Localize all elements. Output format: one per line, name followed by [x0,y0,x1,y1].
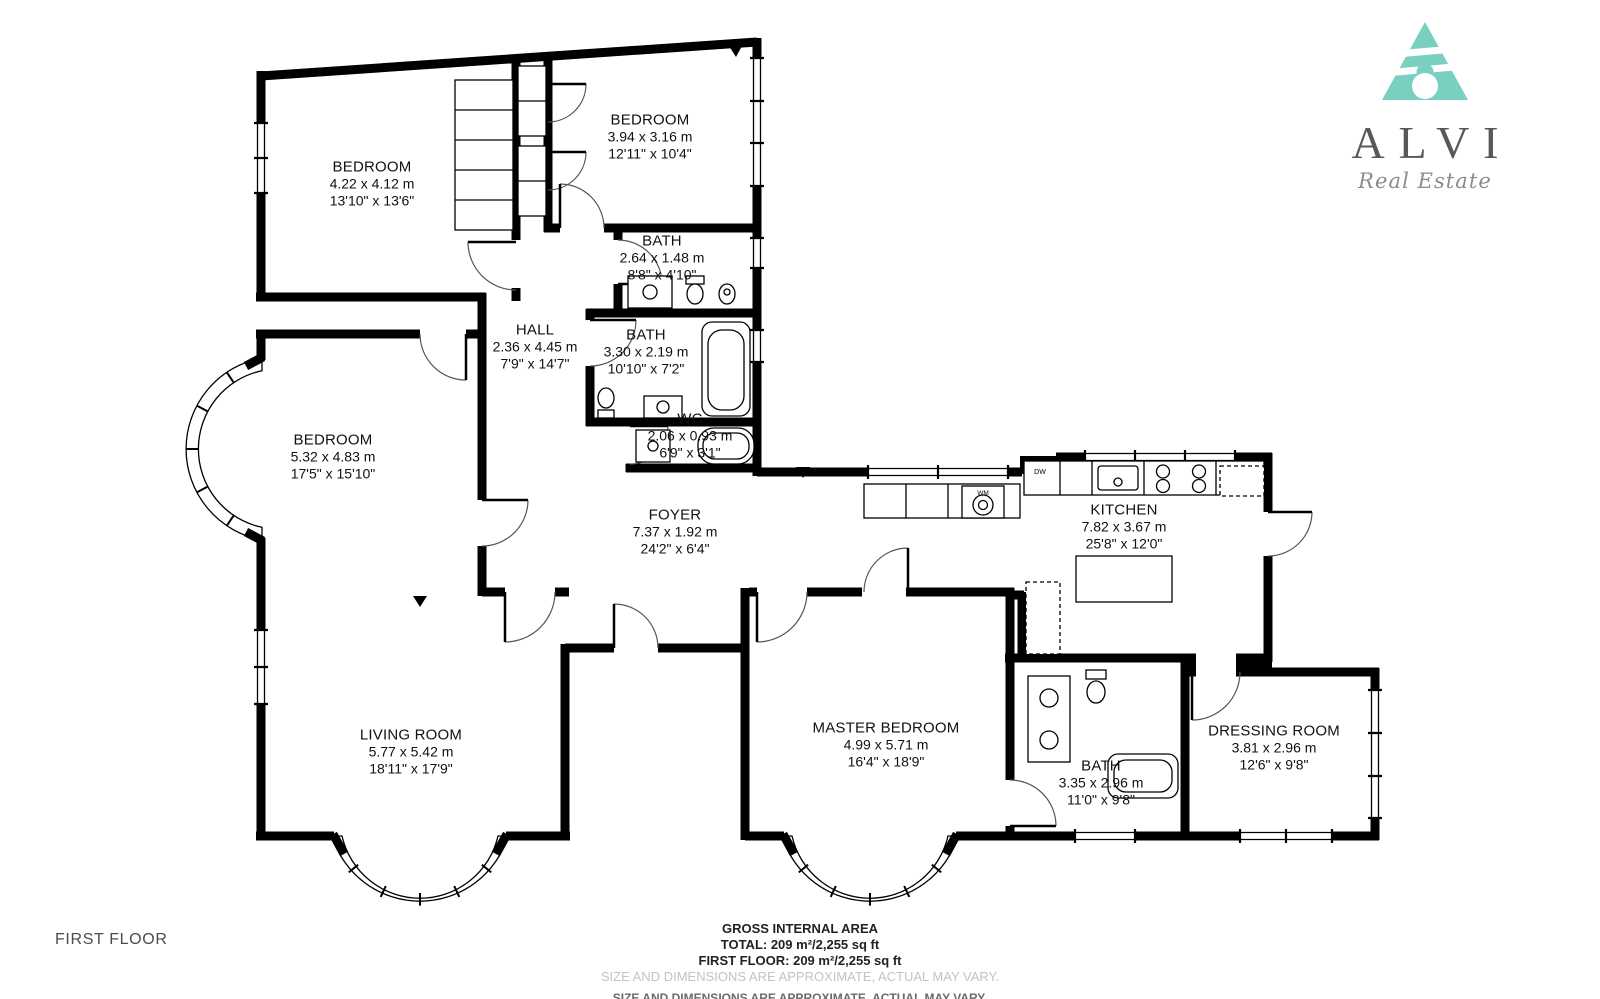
first-floor-area: FIRST FLOOR: 209 m²/2,255 sq ft [0,953,1600,969]
size-disclaimer: SIZE AND DIMENSIONS ARE APPROXIMATE, ACT… [0,969,1600,985]
master-bath-fixtures [1028,670,1178,798]
closet-shelves [455,66,546,230]
floorplan-page: DW WM [0,0,1600,999]
washing-machine-label: WM [977,490,989,497]
brand-name: ALVI [1315,116,1549,169]
total-area: TOTAL: 209 m²/2,255 sq ft [0,937,1600,953]
bath1-fixtures [628,276,735,308]
windows [254,58,1382,843]
corridor-fixtures: WM [864,484,1020,518]
walls [256,38,1379,840]
fixtures: DW WM [455,66,1264,798]
brand-tagline: Real Estate [1315,169,1535,193]
bay-windows [186,357,958,906]
gross-area-heading: GROSS INTERNAL AREA [0,921,1600,937]
bath2-fixtures [598,322,750,418]
wc-fixtures [636,428,754,464]
kitchen-fixtures: DW [1024,461,1264,654]
dishwasher-label: DW [1034,469,1046,476]
brand-logo: ALVI Real Estate [1315,20,1535,193]
bow-window-master [782,836,958,901]
cropped-text-artifact: SIZE AND DIMENSIONS ARE APPROXIMATE, ACT… [0,992,1600,999]
kitchen-island [1076,556,1172,602]
area-summary: GROSS INTERNAL AREA TOTAL: 209 m²/2,255 … [0,921,1600,985]
logo-mark [1350,20,1500,112]
bow-window-living [332,836,508,901]
